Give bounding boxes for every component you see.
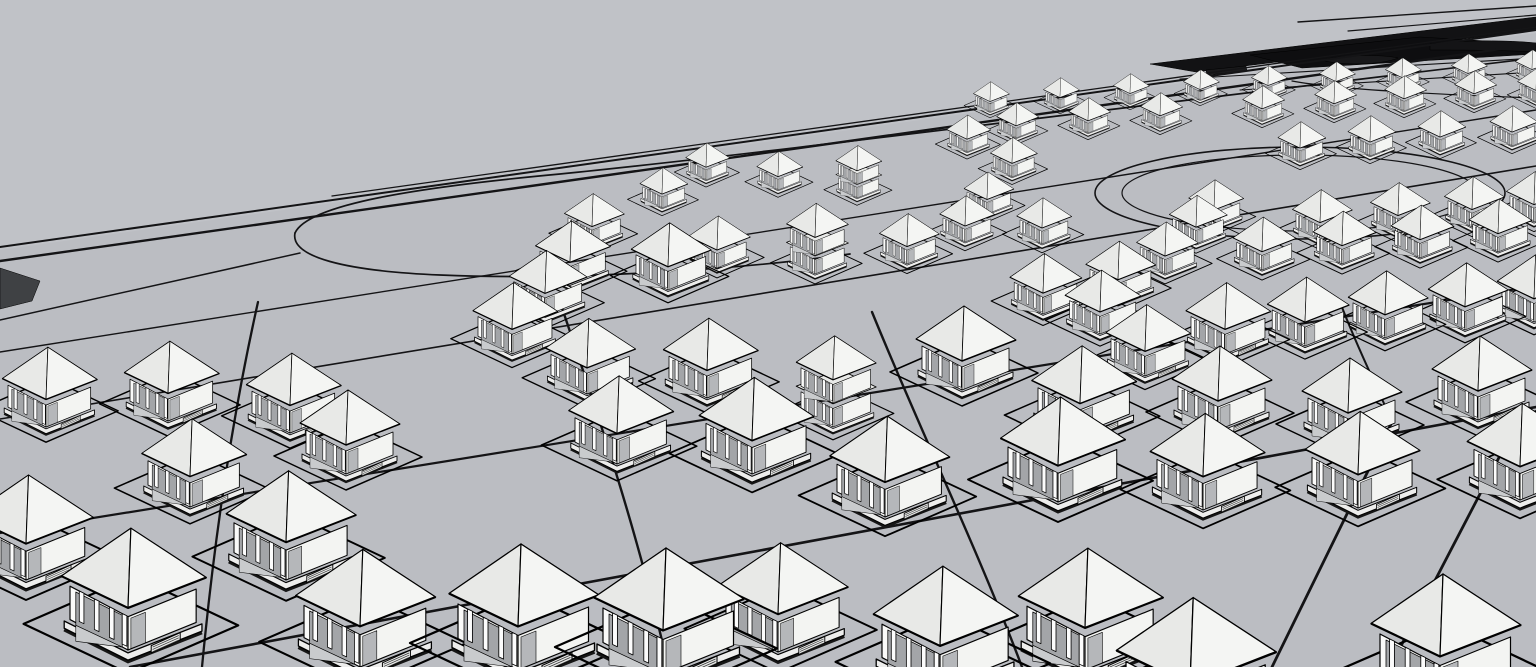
side-opening — [964, 364, 974, 389]
side-opening — [1161, 117, 1165, 128]
porch-column — [1199, 91, 1200, 99]
porch-column — [813, 258, 815, 272]
side-opening — [1263, 110, 1267, 121]
porch-column — [823, 379, 826, 397]
porch-column — [845, 468, 849, 495]
porch-column — [10, 543, 14, 571]
porch-column — [807, 237, 809, 251]
side-opening — [1441, 139, 1446, 151]
side-opening — [781, 618, 794, 651]
side-opening — [1197, 229, 1203, 244]
3d-scene-canvas[interactable] — [0, 0, 1536, 667]
side-opening — [589, 371, 598, 394]
porch-column — [1078, 118, 1079, 127]
porch-column — [703, 374, 706, 395]
porch-column — [1424, 131, 1426, 142]
porch-column — [14, 388, 17, 409]
porch-column — [1029, 458, 1033, 486]
porch-column — [1472, 95, 1473, 104]
porch-column — [1198, 481, 1202, 507]
porch-column — [1358, 305, 1361, 323]
porch-column — [21, 549, 25, 577]
porch-column — [1074, 303, 1076, 320]
porch-column — [1469, 94, 1470, 103]
side-opening — [1467, 309, 1475, 329]
porch-column — [761, 613, 765, 642]
porch-column — [1353, 479, 1357, 505]
side-opening — [908, 248, 914, 263]
porch-column — [656, 194, 658, 205]
side-opening — [1360, 478, 1372, 507]
porch-column — [1040, 230, 1042, 242]
porch-column — [776, 178, 777, 188]
side-opening — [1061, 470, 1074, 501]
porch-column — [646, 188, 648, 199]
porch-column — [1390, 94, 1391, 103]
porch-column — [1417, 242, 1419, 256]
side-opening — [1044, 295, 1051, 313]
porch-column — [566, 362, 569, 382]
porch-column — [1090, 311, 1092, 328]
porch-column — [1531, 90, 1532, 99]
porch-column — [846, 168, 847, 178]
porch-column — [1456, 69, 1457, 77]
porch-column — [1364, 142, 1366, 153]
porch-column — [256, 534, 260, 563]
side-opening — [1131, 95, 1135, 104]
side-opening — [1480, 394, 1490, 419]
porch-column — [258, 394, 261, 415]
porch-column — [492, 324, 495, 343]
porch-column — [801, 234, 803, 248]
side-opening — [1201, 91, 1205, 100]
porch-column — [949, 360, 952, 383]
porch-column — [583, 371, 586, 391]
porch-column — [921, 645, 926, 667]
porch-column — [146, 388, 149, 409]
porch-column — [613, 613, 618, 647]
side-opening — [1475, 95, 1479, 106]
porch-column — [963, 228, 965, 240]
porch-column — [1011, 126, 1012, 135]
side-opening — [521, 631, 536, 667]
side-opening — [1089, 122, 1093, 133]
porch-column — [312, 433, 315, 456]
porch-column — [1195, 89, 1196, 97]
porch-column — [801, 252, 803, 266]
porch-column — [1116, 341, 1119, 360]
porch-column — [1527, 88, 1528, 97]
porch-column — [1382, 318, 1385, 336]
side-opening — [1017, 127, 1021, 138]
side-opening — [1335, 105, 1339, 116]
porch-column — [851, 171, 852, 181]
porch-column — [1354, 136, 1356, 147]
porch-column — [1434, 137, 1436, 148]
porch-column — [794, 230, 796, 244]
porch-column — [952, 134, 953, 144]
porch-column — [1252, 106, 1253, 115]
porch-column — [1195, 395, 1198, 418]
porch-column — [1118, 89, 1119, 97]
porch-column — [1184, 389, 1187, 412]
porch-column — [1286, 317, 1289, 335]
porch-column — [1125, 346, 1128, 365]
porch-column — [1321, 238, 1323, 252]
porch-column — [593, 427, 596, 451]
porch-column — [1481, 453, 1485, 479]
porch-column — [1158, 117, 1159, 126]
side-opening — [48, 402, 58, 426]
porch-column — [685, 365, 688, 386]
porch-column — [1394, 75, 1395, 83]
side-opening — [192, 480, 203, 506]
porch-column — [767, 174, 768, 184]
porch-column — [1134, 351, 1137, 370]
porch-column — [1277, 313, 1280, 331]
porch-column — [468, 609, 473, 643]
porch-column — [905, 249, 907, 263]
porch-column — [1390, 639, 1395, 667]
porch-column — [1375, 314, 1378, 332]
porch-column — [899, 246, 901, 260]
porch-column — [1257, 109, 1258, 118]
porch-column — [1402, 100, 1403, 109]
porch-column — [1034, 293, 1036, 309]
porch-column — [354, 632, 358, 664]
porch-column — [1412, 239, 1414, 253]
porch-column — [1526, 204, 1528, 218]
porch-column — [1455, 385, 1458, 408]
porch-column — [1495, 236, 1497, 250]
porch-column — [1142, 355, 1145, 374]
side-opening — [1043, 230, 1049, 244]
porch-column — [1150, 113, 1151, 122]
porch-column — [483, 319, 486, 338]
porch-column — [957, 137, 958, 147]
porch-column — [1259, 254, 1261, 268]
side-opening — [1513, 134, 1518, 146]
porch-column — [575, 367, 578, 387]
porch-column — [695, 370, 698, 391]
porch-column — [773, 619, 777, 648]
porch-column — [814, 375, 817, 393]
porch-column — [0, 536, 1, 564]
porch-column — [509, 333, 512, 352]
porch-column — [830, 383, 833, 401]
porch-column — [709, 250, 711, 264]
porch-column — [333, 444, 336, 467]
porch-column — [1188, 85, 1189, 93]
porch-column — [737, 440, 741, 466]
porch-column — [1452, 203, 1454, 217]
porch-column — [1324, 77, 1325, 85]
porch-column — [1079, 634, 1084, 667]
porch-column — [1343, 474, 1347, 500]
porch-column — [939, 355, 942, 378]
porch-column — [1421, 655, 1426, 667]
porch-column — [582, 421, 585, 445]
porch-column — [855, 186, 856, 196]
porch-column — [1399, 232, 1401, 246]
porch-column — [1438, 139, 1440, 150]
side-opening — [816, 239, 822, 255]
side-opening — [1387, 317, 1395, 337]
porch-column — [1329, 104, 1330, 113]
porch-column — [342, 449, 345, 472]
side-opening — [1166, 258, 1172, 274]
model-viewport[interactable] — [0, 0, 1536, 667]
porch-column — [1405, 647, 1410, 667]
porch-column — [1247, 248, 1249, 262]
porch-column — [1306, 219, 1308, 233]
porch-column — [1324, 101, 1325, 110]
porch-column — [651, 191, 653, 202]
porch-column — [978, 97, 979, 105]
porch-column — [278, 405, 281, 426]
side-opening — [666, 635, 681, 667]
porch-column — [725, 434, 729, 460]
porch-column — [985, 101, 986, 109]
porch-column — [813, 240, 815, 254]
porch-column — [1157, 256, 1159, 270]
porch-column — [1520, 201, 1522, 215]
porch-column — [1014, 127, 1015, 136]
porch-column — [604, 433, 607, 457]
porch-column — [1327, 242, 1329, 256]
porch-column — [748, 606, 752, 635]
porch-column — [1241, 244, 1243, 258]
porch-column — [1086, 122, 1087, 131]
porch-column — [1438, 297, 1441, 315]
side-opening — [1227, 332, 1236, 353]
porch-column — [806, 370, 809, 388]
side-opening — [1263, 254, 1269, 270]
side-opening — [1307, 325, 1315, 346]
porch-column — [1163, 258, 1165, 272]
porch-column — [1455, 306, 1458, 324]
side-opening — [1147, 354, 1156, 375]
porch-column — [512, 632, 517, 666]
porch-column — [851, 184, 852, 194]
porch-column — [958, 226, 960, 238]
porch-column — [1035, 228, 1037, 240]
porch-column — [499, 625, 504, 659]
porch-column — [965, 141, 966, 151]
porch-column — [1496, 126, 1498, 137]
porch-column — [1325, 407, 1328, 430]
porch-column — [1531, 302, 1534, 320]
porch-column — [1378, 209, 1380, 223]
porch-column — [947, 220, 949, 232]
porch-column — [644, 629, 649, 663]
porch-column — [1474, 395, 1477, 418]
porch-column — [649, 262, 652, 280]
porch-column — [1248, 104, 1249, 113]
porch-column — [1477, 226, 1479, 240]
porch-column — [830, 407, 833, 425]
porch-column — [1074, 116, 1075, 125]
side-opening — [131, 612, 146, 648]
porch-column — [166, 470, 169, 494]
porch-column — [1059, 99, 1060, 107]
porch-column — [1390, 73, 1391, 81]
side-opening — [779, 178, 784, 190]
porch-column — [696, 165, 697, 175]
porch-column — [1052, 95, 1053, 103]
porch-column — [628, 621, 633, 655]
porch-column — [1506, 132, 1508, 143]
porch-column — [1464, 209, 1466, 223]
porch-column — [1501, 129, 1503, 140]
porch-column — [934, 652, 939, 667]
porch-column — [1002, 121, 1003, 130]
side-opening — [707, 169, 711, 180]
side-opening — [1088, 632, 1103, 667]
porch-column — [34, 399, 37, 420]
porch-column — [1510, 134, 1512, 145]
porch-column — [1256, 81, 1257, 89]
porch-column — [1366, 310, 1369, 328]
porch-column — [891, 629, 896, 662]
porch-column — [952, 223, 954, 235]
side-opening — [718, 252, 724, 268]
porch-column — [1051, 619, 1056, 652]
porch-column — [483, 617, 488, 651]
porch-column — [1334, 245, 1336, 259]
porch-column — [1196, 319, 1199, 338]
porch-column — [691, 162, 692, 172]
porch-column — [657, 636, 662, 667]
porch-column — [982, 99, 983, 107]
porch-column — [855, 173, 856, 183]
porch-column — [1320, 99, 1321, 108]
side-opening — [754, 444, 766, 473]
porch-column — [893, 243, 895, 257]
porch-column — [1446, 302, 1449, 320]
side-opening — [887, 486, 899, 516]
porch-column — [1284, 142, 1286, 153]
porch-column — [842, 166, 843, 176]
porch-column — [1359, 139, 1361, 150]
porch-column — [1097, 315, 1099, 332]
porch-column — [1460, 89, 1461, 98]
porch-column — [1300, 216, 1302, 230]
porch-column — [846, 182, 847, 192]
porch-column — [1405, 236, 1407, 250]
porch-column — [1164, 463, 1168, 489]
porch-column — [906, 637, 911, 667]
porch-column — [1319, 461, 1323, 487]
porch-column — [1458, 206, 1460, 220]
porch-column — [1083, 121, 1084, 130]
porch-column — [122, 614, 127, 647]
porch-column — [704, 169, 705, 179]
porch-column — [156, 393, 159, 414]
side-opening — [991, 103, 995, 112]
porch-column — [613, 438, 616, 462]
porch-column — [1006, 163, 1008, 174]
side-opening — [29, 548, 42, 579]
porch-column — [1188, 476, 1192, 502]
porch-column — [1534, 92, 1535, 101]
side-opening — [1371, 144, 1376, 156]
porch-column — [136, 382, 139, 403]
porch-column — [1053, 471, 1057, 499]
porch-column — [1040, 296, 1042, 312]
side-opening — [1499, 236, 1505, 252]
porch-column — [1048, 93, 1049, 101]
porch-column — [1524, 298, 1527, 316]
porch-column — [996, 158, 998, 169]
porch-column — [1125, 93, 1126, 101]
porch-column — [887, 240, 889, 254]
porch-column — [1295, 322, 1298, 340]
side-opening — [966, 228, 972, 242]
porch-column — [1483, 230, 1485, 244]
porch-column — [1001, 160, 1003, 171]
porch-column — [1399, 99, 1400, 108]
porch-column — [715, 252, 717, 266]
porch-column — [79, 591, 84, 624]
porch-column — [109, 607, 114, 640]
porch-column — [658, 266, 661, 284]
side-opening — [1061, 99, 1065, 108]
porch-column — [665, 270, 668, 288]
porch-column — [1289, 145, 1291, 156]
side-opening — [1013, 165, 1018, 177]
porch-column — [501, 329, 504, 348]
porch-column — [961, 139, 962, 149]
side-opening — [170, 396, 180, 420]
side-opening — [348, 448, 358, 473]
porch-column — [814, 399, 817, 417]
side-opening — [835, 382, 843, 402]
porch-column — [342, 625, 346, 657]
porch-column — [1082, 307, 1084, 324]
porch-column — [1066, 627, 1071, 660]
porch-column — [164, 397, 167, 418]
side-opening — [1102, 314, 1110, 333]
porch-column — [857, 475, 861, 502]
porch-column — [1523, 86, 1524, 95]
porch-column — [1314, 401, 1317, 424]
porch-column — [286, 409, 289, 430]
porch-column — [557, 357, 560, 377]
side-opening — [619, 437, 630, 463]
porch-column — [1214, 329, 1217, 348]
side-opening — [858, 186, 863, 198]
porch-column — [675, 359, 678, 380]
porch-column — [1505, 466, 1509, 492]
porch-column — [1019, 285, 1021, 301]
porch-column — [700, 167, 701, 177]
side-opening — [514, 332, 523, 353]
porch-column — [24, 394, 27, 415]
porch-column — [1302, 325, 1305, 343]
side-opening — [968, 141, 972, 152]
porch-column — [1129, 95, 1130, 103]
porch-column — [1146, 111, 1147, 120]
roof-facet-front-right — [1520, 403, 1536, 466]
porch-column — [94, 599, 99, 632]
porch-column — [328, 618, 332, 650]
porch-column — [313, 610, 317, 642]
porch-column — [1205, 324, 1208, 343]
porch-column — [1312, 222, 1314, 236]
side-opening — [1205, 480, 1217, 509]
side-opening — [1421, 242, 1427, 258]
